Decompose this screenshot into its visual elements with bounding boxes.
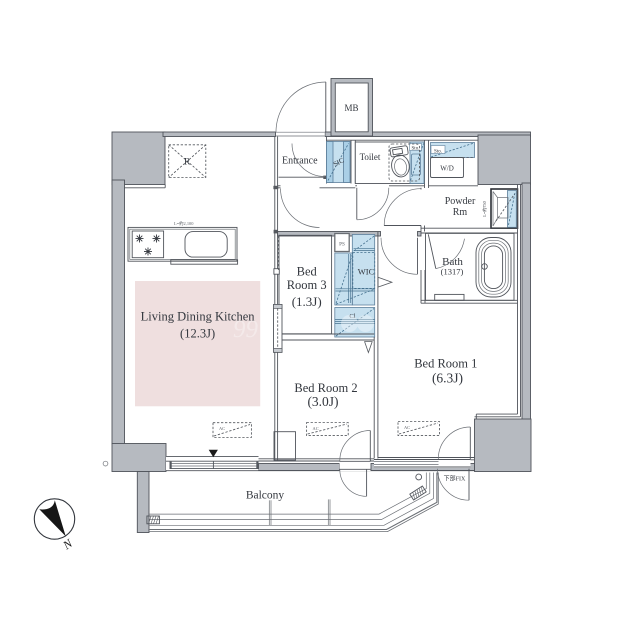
svg-text:PS: PS (339, 242, 345, 248)
svg-text:L=約750: L=約750 (481, 201, 488, 216)
svg-text:WIC: WIC (358, 267, 375, 277)
svg-text:(1.3J): (1.3J) (292, 294, 322, 309)
svg-text:Toilet: Toilet (360, 152, 381, 162)
svg-text:MB: MB (344, 103, 358, 113)
svg-text:W/D: W/D (440, 165, 454, 173)
svg-text:(12.3J): (12.3J) (180, 326, 215, 340)
svg-text:Sto.: Sto. (412, 147, 420, 152)
svg-text:Room 3: Room 3 (287, 278, 327, 292)
svg-text:Sto.: Sto. (434, 149, 442, 154)
svg-text:AC: AC (219, 426, 225, 431)
svg-text:Bed Room 1: Bed Room 1 (414, 356, 477, 370)
svg-text:(3.0J): (3.0J) (307, 394, 338, 409)
svg-text:L=約2,100: L=約2,100 (174, 220, 194, 227)
svg-text:下部FIX: 下部FIX (444, 475, 466, 483)
svg-text:Rm: Rm (453, 207, 468, 218)
svg-text:Bed Room 2: Bed Room 2 (294, 381, 357, 395)
svg-text:99: 99 (233, 316, 259, 343)
svg-text:Entrance: Entrance (282, 156, 318, 167)
svg-text:Powder: Powder (445, 196, 476, 207)
svg-text:AC: AC (404, 425, 410, 430)
svg-text:Balcony: Balcony (246, 490, 285, 502)
svg-text:AC: AC (313, 426, 319, 431)
svg-text:R: R (184, 158, 191, 168)
svg-text:(6.3J): (6.3J) (432, 371, 463, 386)
svg-text:Bed: Bed (297, 265, 318, 279)
svg-text:(1317): (1317) (441, 266, 464, 276)
